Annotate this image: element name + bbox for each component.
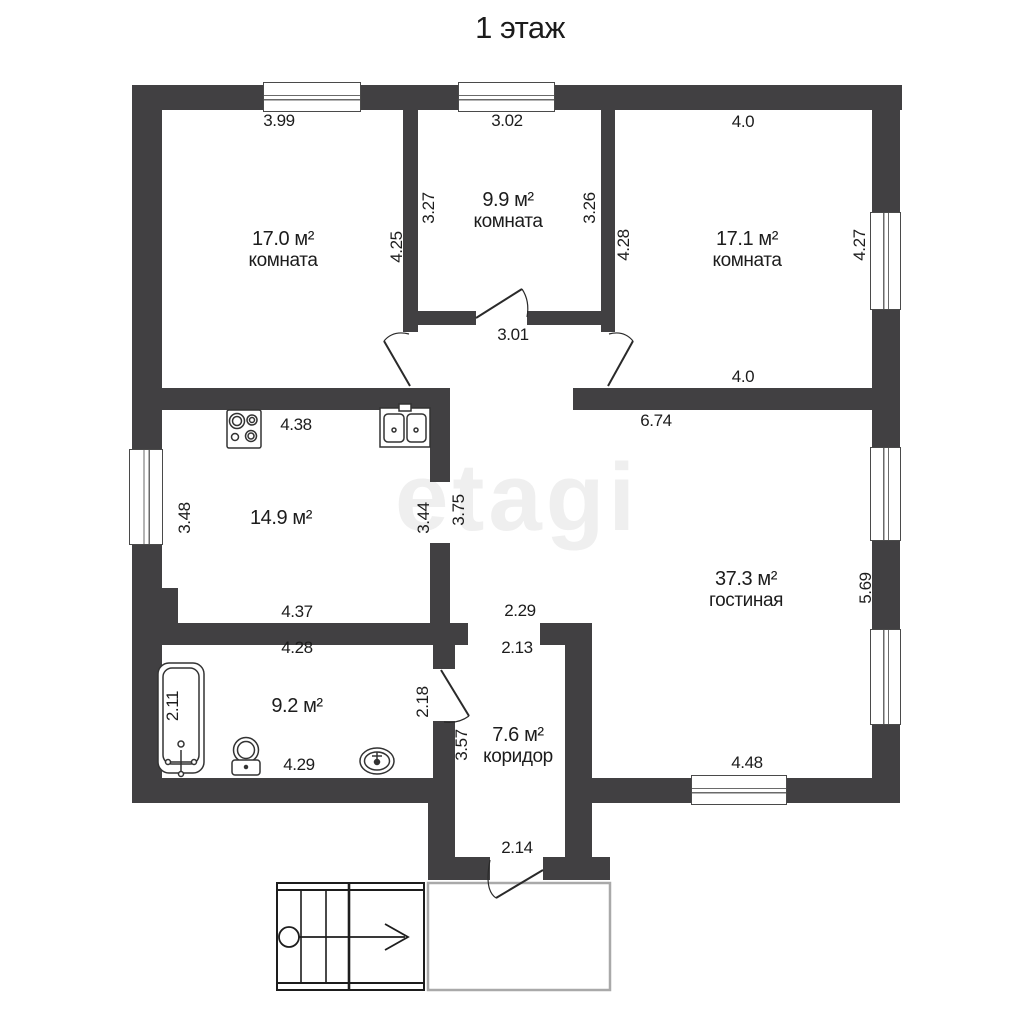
door-arc [384,333,410,386]
dim-room3-bottom: 4.0 [732,367,754,387]
dim-living-bottom: 4.48 [731,753,763,773]
dim-living-left: 3.75 [449,494,469,526]
dim-corridor-top: 2.13 [501,638,533,658]
room3-area: 17.1 м² [712,228,781,250]
room-label-room1: 17.0 м² комната [248,228,317,272]
room2-area: 9.9 м² [473,189,542,211]
living-area: 37.3 м² [709,568,783,590]
room2-name: комната [473,212,542,233]
bathroom-sink [360,748,394,774]
stove [227,410,261,448]
dim-passage-top: 2.29 [504,601,536,621]
dim-bath-top: 4.28 [281,638,313,658]
floor-plan: 1 этаж etagi [0,0,1024,1024]
room-label-room2: 9.9 м² комната [473,189,542,233]
kitchen-area: 14.9 м² [250,507,312,529]
dim-kitchen-right: 3.44 [414,502,434,534]
dim-room3-right: 4.27 [850,229,870,261]
room1-area: 17.0 м² [248,228,317,250]
dim-room2-top: 3.02 [491,111,523,131]
dim-room2-left: 3.27 [419,192,439,224]
living-name: гостиная [709,591,783,612]
corridor-name: коридор [483,747,553,768]
room-label-corridor: 7.6 м² коридор [483,724,553,768]
dim-room1-right: 4.25 [387,231,407,263]
dim-living-right: 5.69 [856,572,876,604]
dim-room1-top: 3.99 [263,111,295,131]
dim-bath-door: 2.18 [413,686,433,718]
floor-title: 1 этаж [475,10,565,46]
dim-corridor-left: 3.57 [452,729,472,761]
dim-room2-right: 3.26 [580,192,600,224]
dim-kitchen-top: 4.38 [280,415,312,435]
dim-entry-door: 2.14 [501,838,533,858]
room-label-bath: 9.2 м² [271,695,322,717]
dim-room3-left: 4.28 [614,229,634,261]
bath-area: 9.2 м² [271,695,322,717]
dim-hall-width: 3.01 [497,325,529,345]
door-arc [441,670,469,722]
door-arc [476,289,528,318]
room3-name: комната [712,251,781,272]
dim-bath-left: 2.11 [163,691,183,721]
dim-bath-bottom: 4.29 [283,755,315,775]
room-label-room3: 17.1 м² комната [712,228,781,272]
corridor-area: 7.6 м² [483,724,553,746]
kitchen-sink [380,404,430,447]
room-label-kitchen: 14.9 м² [250,507,312,529]
room-label-living: 37.3 м² гостиная [709,568,783,612]
dim-kitchen-left: 3.48 [175,502,195,534]
door-arc [608,333,633,386]
dim-living-top: 6.74 [640,411,672,431]
dim-kitchen-bottom: 4.37 [281,602,313,622]
room1-name: комната [248,251,317,272]
toilet [232,738,260,776]
porch [428,883,610,990]
plan-graphics [0,0,1024,1024]
dim-room3-top: 4.0 [732,112,754,132]
